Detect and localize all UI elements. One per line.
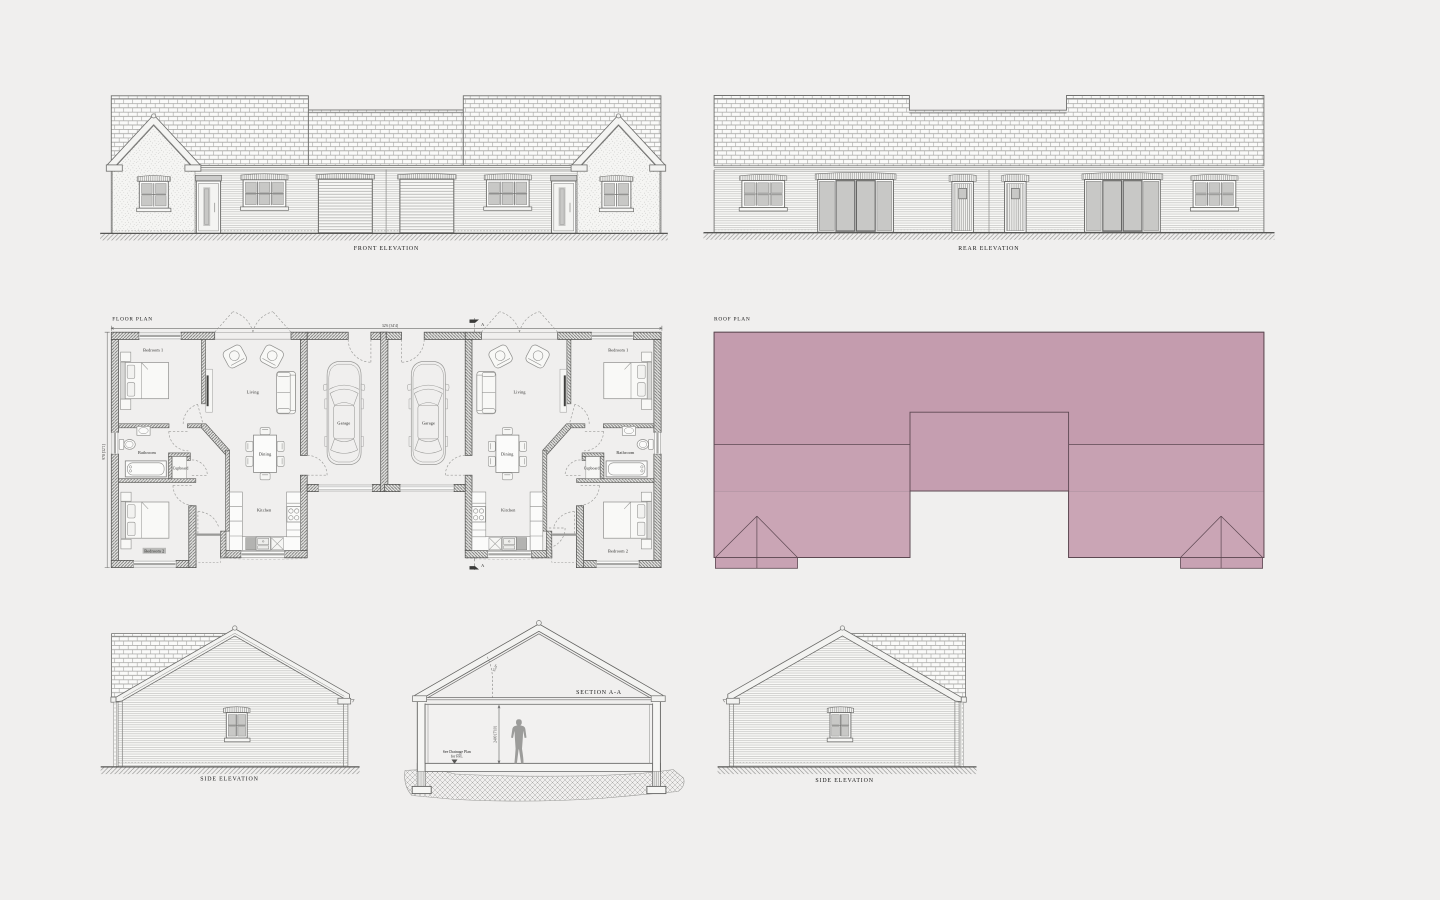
svg-text:SIDE ELEVATION: SIDE ELEVATION — [200, 776, 258, 782]
svg-text:Garage: Garage — [422, 420, 435, 425]
svg-text:Kitchen: Kitchen — [501, 508, 516, 513]
svg-text:Garage: Garage — [337, 420, 350, 425]
svg-text:ROOF PLAN: ROOF PLAN — [714, 316, 751, 322]
svg-text:Living: Living — [247, 389, 260, 394]
svg-text:Kitchen: Kitchen — [257, 508, 272, 513]
svg-text:Cupboard: Cupboard — [173, 466, 189, 470]
svg-text:Bathroom: Bathroom — [616, 450, 635, 455]
svg-text:Living: Living — [514, 389, 527, 394]
svg-text:SIDE ELEVATION: SIDE ELEVATION — [815, 778, 873, 784]
svg-text:32'6 [34'4]: 32'6 [34'4] — [382, 324, 398, 328]
svg-text:2400 [7'10]: 2400 [7'10] — [494, 726, 498, 743]
svg-text:FLOOR PLAN: FLOOR PLAN — [112, 316, 153, 322]
svg-text:Dining: Dining — [259, 452, 272, 457]
svg-text:Bedroom 1: Bedroom 1 — [143, 348, 163, 353]
svg-text:for FFL: for FFL — [451, 754, 464, 758]
svg-text:Dining: Dining — [501, 452, 514, 457]
svg-text:SECTION A-A: SECTION A-A — [576, 690, 622, 696]
svg-text:Bedroom 2: Bedroom 2 — [608, 549, 628, 554]
svg-text:Cupboard: Cupboard — [584, 466, 600, 470]
svg-text:Bedroom 1: Bedroom 1 — [608, 348, 628, 353]
svg-text:Bedroom 2: Bedroom 2 — [144, 549, 164, 554]
svg-text:See Drainage Plan: See Drainage Plan — [443, 750, 471, 754]
svg-text:FRONT ELEVATION: FRONT ELEVATION — [354, 246, 419, 252]
svg-text:Bathroom: Bathroom — [138, 450, 157, 455]
svg-text:REAR ELEVATION: REAR ELEVATION — [958, 246, 1019, 252]
svg-text:978 [32'1]: 978 [32'1] — [102, 444, 106, 460]
